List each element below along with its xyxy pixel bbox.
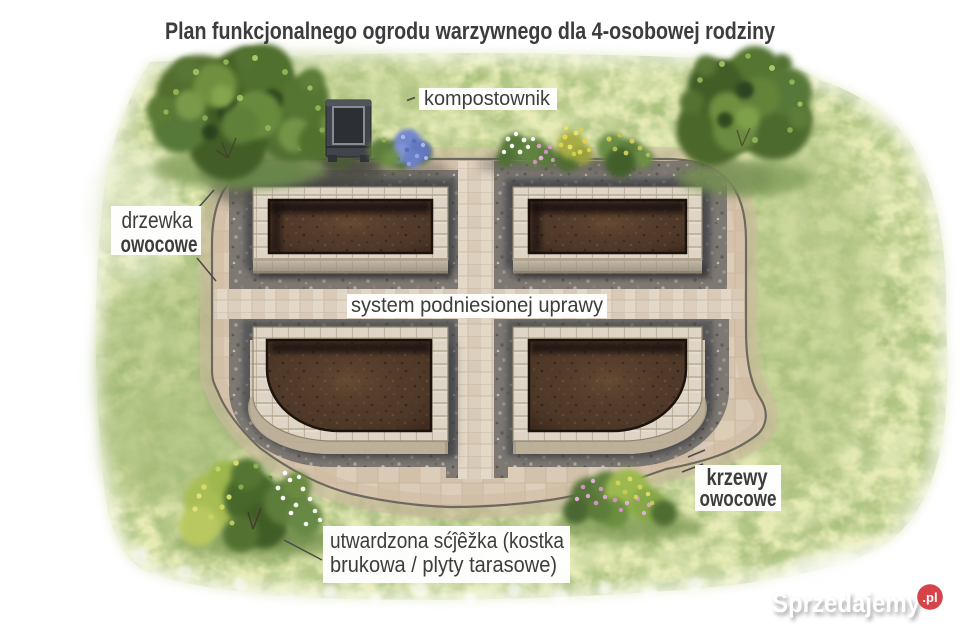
svg-text:kompostownik: kompostownik [424, 88, 551, 110]
svg-text:brukowa / plyty tarasowe): brukowa / plyty tarasowe) [330, 552, 557, 577]
svg-text:system podniesionej uprawy: system podniesionej uprawy [351, 294, 603, 317]
svg-text:drzewka: drzewka [122, 207, 193, 233]
svg-text:owocowe: owocowe [121, 231, 198, 257]
svg-text:Sprzedajemy: Sprzedajemy [772, 588, 920, 618]
svg-text:utwardzona sćĵêžka (kostka: utwardzona sćĵêžka (kostka [330, 528, 565, 553]
svg-text:Plan funkcjonalnego ogrodu war: Plan funkcjonalnego ogrodu warzywnego dl… [165, 18, 776, 45]
svg-text:.pl: .pl [922, 590, 937, 605]
svg-text:owocowe: owocowe [700, 486, 777, 511]
